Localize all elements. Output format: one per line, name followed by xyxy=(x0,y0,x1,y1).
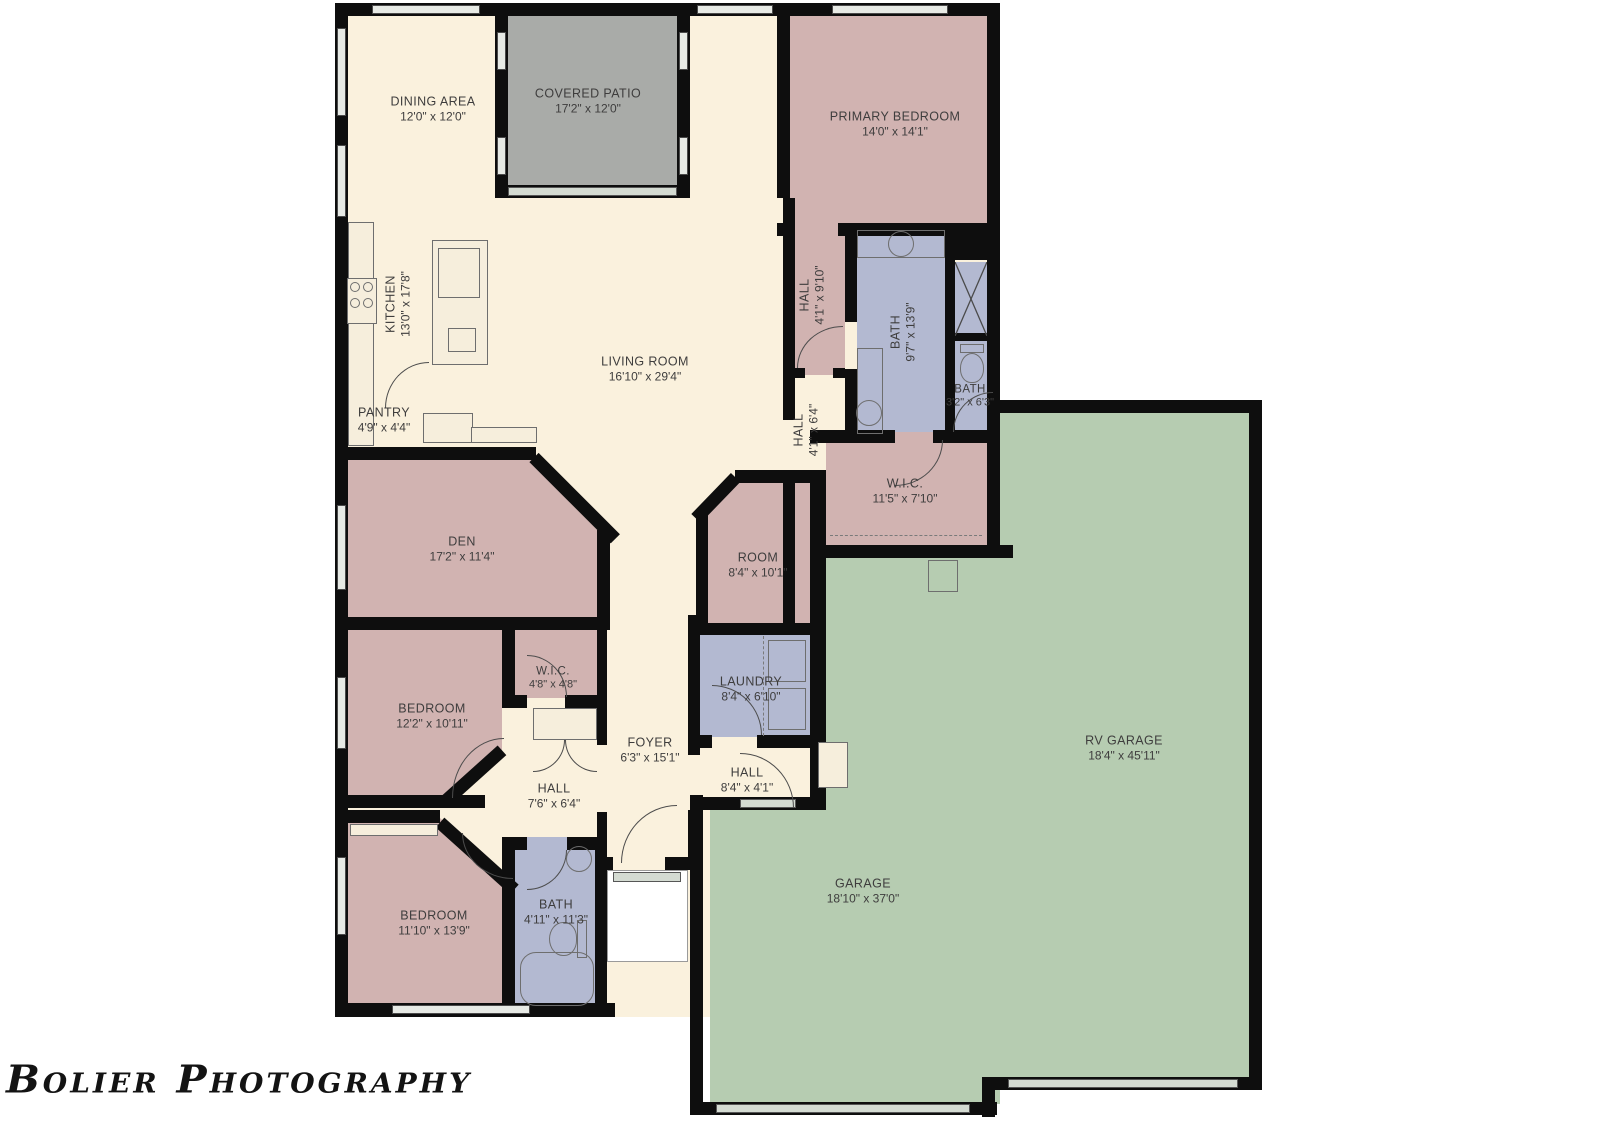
room-label-bath-hall: BATH4'11" x 11'3" xyxy=(524,898,588,927)
room-label-rv-garage: RV GARAGE18'4" x 45'11" xyxy=(1085,734,1163,763)
room-label-bath-primary: BATH9'7" x 13'9" xyxy=(889,302,918,361)
garage-step xyxy=(818,742,848,788)
wall xyxy=(757,735,823,748)
wall xyxy=(810,545,1013,558)
room-label-garage: GARAGE18'10" x 37'0" xyxy=(827,877,900,906)
window xyxy=(337,505,346,590)
garage-step xyxy=(928,560,958,592)
room-label-wic-primary: W.I.C.11'5" x 7'10" xyxy=(873,477,938,506)
window xyxy=(337,28,346,116)
room-label-hall-garage: HALL8'4" x 4'1" xyxy=(721,766,773,795)
room-label-laundry: LAUNDRY8'4" x 6'10" xyxy=(720,675,782,704)
wic-shelf-line xyxy=(830,535,982,536)
wall xyxy=(344,617,610,630)
floor-plan: DINING AREA12'0" x 12'0" COVERED PATIO17… xyxy=(0,0,1600,1133)
burner xyxy=(350,282,360,292)
room-label-hall-mid: HALL4'1" x 6'4" xyxy=(792,404,821,456)
wall xyxy=(688,615,700,755)
sink xyxy=(856,400,882,426)
room-label-wic-small: W.I.C.4'8" x 4'8" xyxy=(529,666,577,691)
burner xyxy=(350,298,360,308)
linen-closet xyxy=(533,708,597,740)
front-step xyxy=(613,872,681,882)
rv-garage-door xyxy=(1008,1079,1238,1088)
island-counter xyxy=(438,248,480,298)
room-label-hall-bedrooms: HALL7'6" x 6'4" xyxy=(528,782,580,811)
garage-door xyxy=(716,1104,970,1113)
wall xyxy=(783,198,795,420)
wall xyxy=(696,623,823,635)
counter xyxy=(471,427,537,443)
wall xyxy=(833,368,845,378)
window xyxy=(832,5,948,14)
wall xyxy=(515,695,527,708)
room-label-bedroom-2: BEDROOM11'10" x 13'9" xyxy=(398,909,470,938)
window xyxy=(372,5,480,14)
wall xyxy=(1000,400,1262,413)
patio-opening xyxy=(497,137,506,175)
counter xyxy=(423,413,473,443)
wall xyxy=(777,14,790,198)
room-label-dining-area: DINING AREA12'0" x 12'0" xyxy=(391,95,476,124)
patio-opening xyxy=(679,137,688,175)
wall xyxy=(565,695,597,708)
wall xyxy=(845,225,857,322)
wall xyxy=(597,615,607,745)
shower xyxy=(955,262,987,336)
window xyxy=(337,677,346,749)
wall xyxy=(688,810,700,857)
wall xyxy=(795,368,805,378)
burner xyxy=(363,298,373,308)
toilet-tank xyxy=(960,344,984,353)
sink xyxy=(888,231,914,257)
garage-floor xyxy=(710,808,1000,1104)
front-porch xyxy=(607,870,688,962)
wall xyxy=(344,810,440,823)
room-label-living-room: LIVING ROOM16'10" x 29'4" xyxy=(601,355,689,384)
room-label-pantry: PANTRY4'9" x 4'4" xyxy=(358,406,410,435)
wall xyxy=(502,630,515,708)
window xyxy=(697,5,773,14)
room-label-room: ROOM8'4" x 10'1" xyxy=(728,551,787,580)
window xyxy=(392,1005,530,1014)
window xyxy=(337,145,346,217)
window xyxy=(337,857,346,935)
room-label-den: DEN17'2" x 11'4" xyxy=(430,535,495,564)
garage-connector-floor xyxy=(826,558,1000,810)
wall xyxy=(1249,400,1262,1090)
room-label-foyer: FOYER6'3" x 15'1" xyxy=(620,736,679,765)
wall xyxy=(344,447,536,460)
wall xyxy=(987,3,1000,545)
room-label-covered-patio: COVERED PATIO17'2" x 12'0" xyxy=(535,87,641,116)
room-label-hall-primary: HALL4'1" x 9'10" xyxy=(798,265,827,324)
sink xyxy=(566,846,592,872)
sliding-door xyxy=(508,187,677,196)
toilet xyxy=(549,922,577,956)
room-label-bath-small: BATH3'2" x 6'3" xyxy=(946,384,994,409)
bathtub xyxy=(520,952,594,1006)
burner xyxy=(363,282,373,292)
kitchen-sink xyxy=(448,328,476,352)
closet-slider xyxy=(350,824,438,836)
room-label-primary-bedroom: PRIMARY BEDROOM14'0" x 14'1" xyxy=(830,110,961,139)
patio-opening xyxy=(679,32,688,70)
wall xyxy=(735,470,810,483)
toilet xyxy=(960,353,984,383)
room-label-kitchen: KITCHEN13'0" x 17'8" xyxy=(384,271,413,337)
photographer-watermark: Bolier Photography xyxy=(6,1057,472,1102)
wall xyxy=(595,837,607,1009)
wall xyxy=(945,260,955,443)
room-label-bedroom-1: BEDROOM12'2" x 10'11" xyxy=(396,702,468,731)
patio-opening xyxy=(497,32,506,70)
